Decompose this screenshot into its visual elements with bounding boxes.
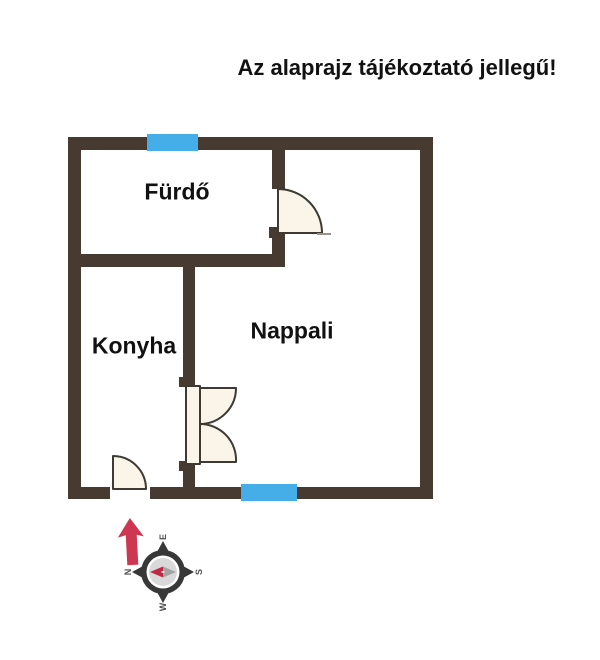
wall-outer-bottom-left <box>68 487 110 499</box>
wall-outer-top <box>68 137 433 150</box>
window-bottom-icon <box>241 484 297 501</box>
compass-label-e: E <box>158 534 168 540</box>
floorplan-page: Az alaprajz tájékoztató jellegű! <box>0 0 600 660</box>
compass-label-n: N <box>123 569 133 576</box>
bathroom-door-icon <box>278 189 322 233</box>
wall-kitchen-right-upper <box>183 254 195 385</box>
double-door-top-leaf-icon <box>200 388 236 424</box>
wall-outer-left <box>68 137 81 499</box>
double-door-bottom-leaf-icon <box>200 424 236 462</box>
room-label-bathroom: Fürdő <box>144 179 209 206</box>
double-door-panel-icon <box>186 386 200 464</box>
room-label-living-room: Nappali <box>250 318 333 345</box>
north-arrow-icon <box>117 517 145 565</box>
window-top-icon <box>147 134 198 151</box>
wall-outer-right <box>420 137 433 499</box>
room-label-kitchen: Konyha <box>92 333 176 360</box>
compass-label-s: S <box>194 569 204 575</box>
entrance-door-icon <box>113 456 146 489</box>
wall-bathroom-bottom <box>68 254 285 267</box>
wall-bathroom-right-upper <box>272 150 285 189</box>
compass-label-w: W <box>158 602 168 611</box>
